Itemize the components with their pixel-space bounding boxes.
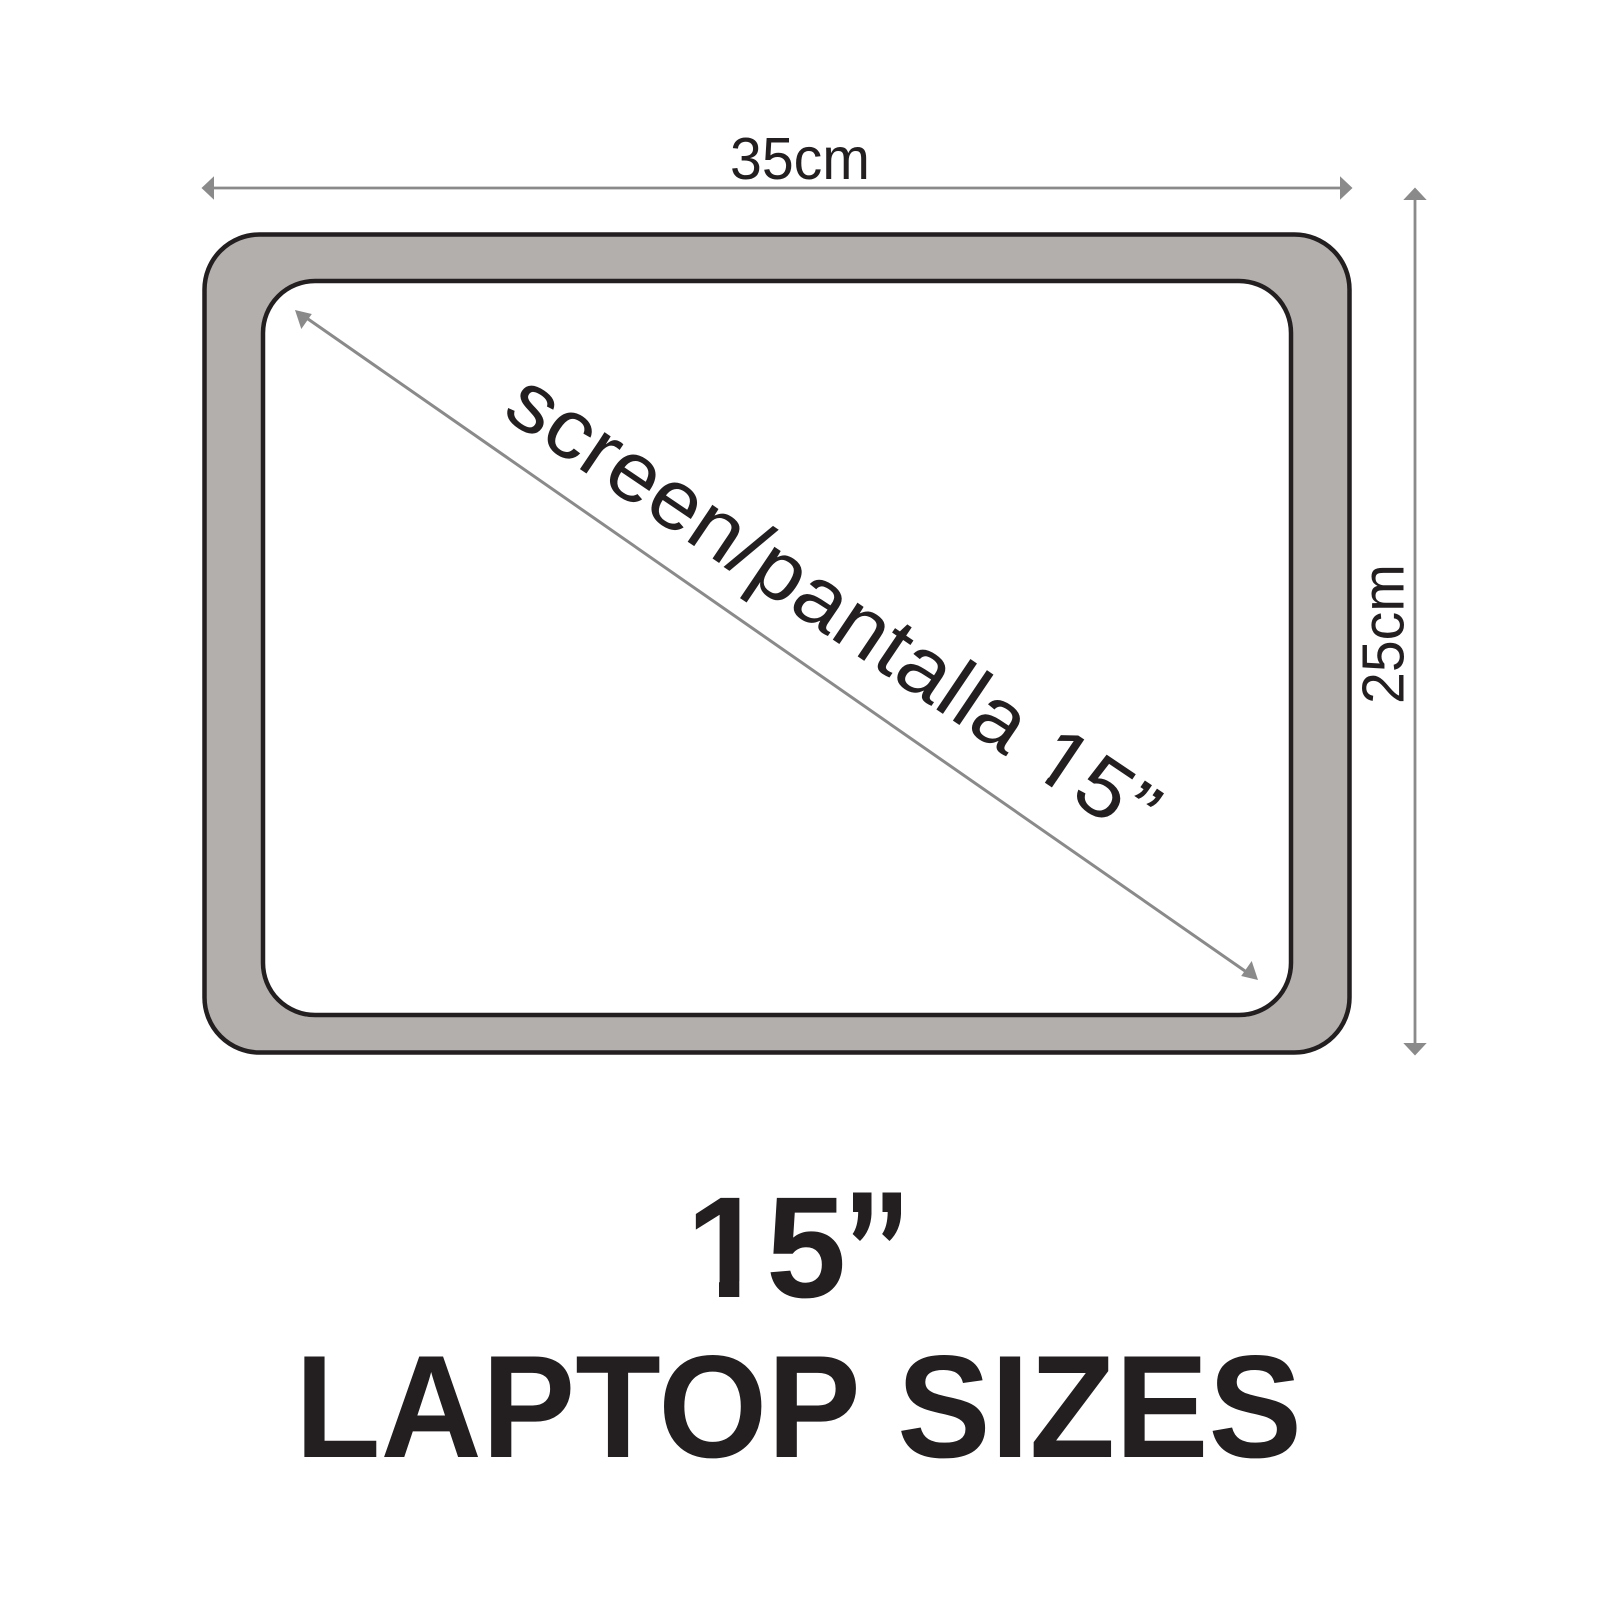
svg-text:25cm: 25cm xyxy=(1351,564,1417,704)
svg-text:15: 15 xyxy=(686,1167,846,1328)
svg-text:35cm: 35cm xyxy=(730,126,870,192)
svg-text:LAPTOP SIZES: LAPTOP SIZES xyxy=(295,1325,1302,1488)
